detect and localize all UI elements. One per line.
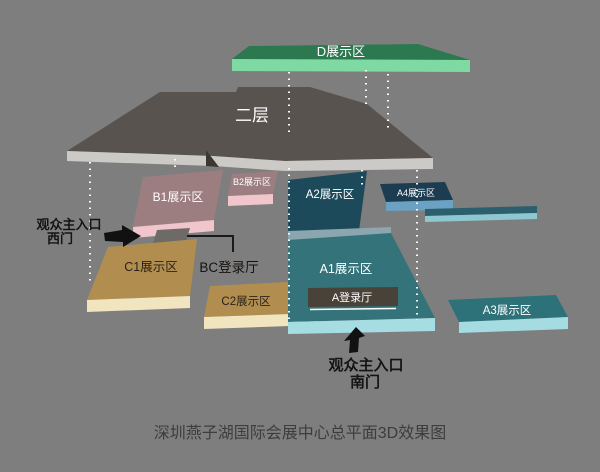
second-floor-label: 二层 — [235, 106, 269, 125]
area-a3-label: A3展示区 — [483, 304, 532, 317]
floorplan-image: D展示区 二层 B1展示区 B2展示区 A2展示区 A4展示区 A1展示区 A登… — [0, 0, 600, 472]
a-hall-underline — [310, 309, 396, 310]
area-a2-label: A2展示区 — [306, 188, 355, 201]
floorplan-svg: D展示区 二层 B1展示区 B2展示区 A2展示区 A4展示区 A1展示区 A登… — [0, 0, 600, 472]
a-hall-label: A登录厅 — [332, 290, 372, 304]
area-a4-label: A4展示区 — [397, 188, 435, 198]
west-entrance-label-line2: 西门 — [47, 231, 73, 246]
caption-title: 深圳燕子湖国际会展中心总平面3D效果图 — [154, 424, 446, 442]
area-c1-label: C1展示区 — [124, 260, 177, 274]
area-b1-label: B1展示区 — [153, 190, 204, 204]
area-b2-label: B2展示区 — [233, 177, 271, 187]
area-d-label: D展示区 — [317, 44, 365, 59]
area-b2-front-face — [228, 194, 273, 206]
south-entrance-label-line2: 南门 — [350, 373, 380, 391]
area-c2-label: C2展示区 — [221, 295, 270, 308]
bc-hall-label: BC登录厅 — [199, 260, 258, 275]
area-a2-top-face — [288, 171, 367, 232]
west-entrance-label-line1: 观众主入口 — [36, 217, 101, 232]
area-a1-label: A1展示区 — [320, 262, 373, 276]
area-d-front-face — [232, 59, 470, 72]
south-entrance-label-line1: 观众主入口 — [328, 356, 403, 374]
